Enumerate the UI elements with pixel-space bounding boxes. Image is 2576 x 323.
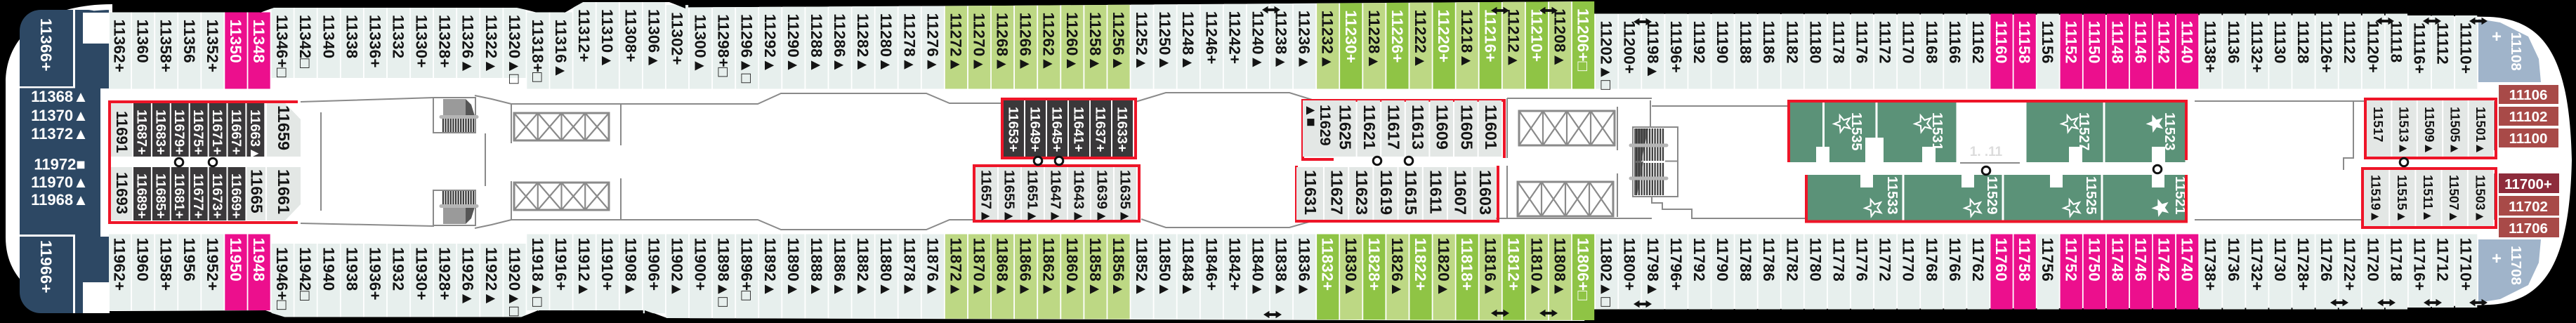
svg-text:11128: 11128: [2294, 21, 2312, 64]
svg-text:11700+: 11700+: [2504, 176, 2552, 192]
svg-text:11641+: 11641+: [1071, 107, 1086, 152]
svg-text:11866▲: 11866▲: [1017, 238, 1034, 298]
svg-text:11651▲: 11651▲: [1025, 170, 1041, 223]
svg-text:11138+: 11138+: [2202, 21, 2219, 73]
svg-text:11168: 11168: [1923, 21, 1940, 64]
svg-text:11948: 11948: [250, 238, 268, 282]
svg-text:11218▲: 11218▲: [1458, 9, 1476, 69]
svg-text:11830▲: 11830▲: [1342, 238, 1360, 298]
svg-text:11880▲: 11880▲: [877, 238, 895, 298]
svg-text:11368▲: 11368▲: [31, 88, 88, 105]
svg-text:11846+: 11846+: [1202, 238, 1220, 291]
svg-text:11531: 11531: [1929, 112, 1945, 151]
svg-text:11340: 11340: [320, 15, 337, 58]
svg-text:11503▲: 11503▲: [2473, 175, 2488, 223]
svg-text:11513▲: 11513▲: [2397, 107, 2412, 155]
svg-text:11716+: 11716+: [2411, 238, 2429, 291]
svg-text:11836▲: 11836▲: [1296, 238, 1313, 298]
svg-text:11206+□: 11206+□: [1575, 8, 1592, 72]
svg-text:11226+: 11226+: [1388, 10, 1406, 63]
svg-text:11228▲: 11228▲: [1365, 10, 1383, 70]
svg-text:11350: 11350: [227, 20, 244, 63]
svg-text:11182: 11182: [1783, 21, 1801, 64]
svg-text:11647▲: 11647▲: [1048, 170, 1064, 223]
svg-text:11720: 11720: [2364, 238, 2381, 282]
svg-text:11728+: 11728+: [2294, 238, 2312, 291]
svg-text:11511▲: 11511▲: [2421, 175, 2436, 223]
svg-text:11896+□: 11896+□: [738, 238, 756, 301]
svg-text:11832+: 11832+: [1319, 238, 1336, 291]
svg-text:11310▲: 11310▲: [598, 9, 616, 69]
svg-text:11828+: 11828+: [1365, 238, 1383, 291]
svg-text:11868▲: 11868▲: [994, 238, 1011, 298]
svg-text:11330+: 11330+: [413, 15, 431, 68]
svg-text:11906+: 11906+: [645, 238, 662, 291]
svg-text:11348: 11348: [250, 20, 268, 63]
svg-text:11308+: 11308+: [622, 9, 639, 62]
svg-text:11158: 11158: [2016, 21, 2033, 64]
svg-text:11722+: 11722+: [2341, 238, 2358, 291]
svg-text:11962+: 11962+: [111, 238, 129, 291]
svg-text:11850▲: 11850▲: [1156, 238, 1174, 298]
svg-text:11653+: 11653+: [1006, 107, 1021, 152]
svg-text:11286▲: 11286▲: [831, 13, 848, 73]
svg-text:11188: 11188: [1737, 21, 1754, 64]
svg-text:11960: 11960: [134, 238, 152, 282]
svg-text:11338: 11338: [343, 15, 360, 58]
svg-text:11760: 11760: [1992, 238, 2010, 282]
svg-text:11655▲: 11655▲: [1001, 170, 1018, 223]
svg-text:11519▲: 11519▲: [2369, 175, 2384, 223]
svg-text:11615: 11615: [1402, 170, 1420, 215]
svg-text:11970▲: 11970▲: [31, 173, 88, 191]
svg-text:11200+: 11200+: [1621, 21, 1638, 74]
svg-text:11150: 11150: [2085, 21, 2103, 64]
svg-text:11132+: 11132+: [2248, 21, 2266, 73]
svg-text:11238▲: 11238▲: [1273, 11, 1290, 70]
svg-text:11645+: 11645+: [1049, 107, 1065, 152]
svg-text:11710+: 11710+: [2457, 238, 2475, 291]
svg-text:11806+□: 11806+□: [1575, 238, 1592, 301]
svg-text:11318+□: 11318+□: [529, 20, 546, 83]
svg-text:11639▲: 11639▲: [1094, 170, 1110, 223]
svg-text:11212▲: 11212▲: [1504, 9, 1522, 69]
svg-text:11657▲: 11657▲: [978, 170, 994, 223]
svg-text:11860▲: 11860▲: [1063, 238, 1081, 298]
svg-text:11148: 11148: [2108, 21, 2126, 64]
svg-text:11342□: 11342□: [296, 15, 314, 68]
svg-text:11266▲: 11266▲: [1017, 13, 1034, 72]
svg-text:11912▲: 11912▲: [575, 238, 593, 298]
svg-text:11306▲: 11306▲: [645, 9, 662, 69]
svg-text:11772: 11772: [1877, 238, 1894, 282]
svg-text:11780: 11780: [1806, 238, 1824, 282]
svg-text:11908▲: 11908▲: [622, 238, 639, 298]
svg-text:11256▲: 11256▲: [1110, 12, 1127, 72]
svg-text:11685+: 11685+: [152, 173, 168, 219]
svg-text:11746: 11746: [2132, 238, 2150, 282]
svg-text:11196+: 11196+: [1667, 21, 1685, 73]
svg-text:11216+: 11216+: [1481, 9, 1499, 62]
svg-text:11856▲: 11856▲: [1110, 238, 1127, 298]
svg-text:11649+: 11649+: [1027, 107, 1043, 152]
svg-text:11358+: 11358+: [157, 20, 175, 73]
svg-text:11890▲: 11890▲: [784, 238, 802, 298]
svg-text:11718: 11718: [2387, 238, 2405, 282]
svg-text:11336+: 11336+: [366, 15, 383, 68]
svg-text:11328+: 11328+: [436, 15, 454, 68]
svg-text:11252▲: 11252▲: [1133, 12, 1150, 72]
svg-text:11750: 11750: [2085, 238, 2103, 282]
svg-text:11637+: 11637+: [1093, 107, 1108, 152]
svg-text:11812+: 11812+: [1504, 238, 1522, 291]
svg-text:11956: 11956: [180, 238, 198, 282]
svg-text:11326▲: 11326▲: [459, 15, 477, 74]
svg-text:11852▲: 11852▲: [1133, 238, 1150, 298]
svg-text:11186: 11186: [1760, 21, 1777, 64]
svg-text:11316▲: 11316▲: [552, 20, 570, 79]
svg-text:11356: 11356: [180, 20, 198, 63]
svg-text:11302+: 11302+: [669, 12, 686, 65]
svg-text:11920▲□: 11920▲□: [506, 247, 523, 317]
svg-text:11156: 11156: [2039, 21, 2056, 64]
svg-text:11663▲: 11663▲: [247, 110, 263, 160]
svg-text:11758: 11758: [2016, 238, 2033, 282]
svg-text:11529: 11529: [1984, 176, 1999, 215]
svg-text:11876▲: 11876▲: [924, 238, 941, 298]
svg-text:11667+: 11667+: [228, 110, 244, 155]
svg-text:11627: 11627: [1328, 170, 1346, 215]
svg-text:11936+: 11936+: [366, 247, 383, 301]
svg-text:11966+: 11966+: [37, 240, 55, 294]
svg-text:11788: 11788: [1737, 238, 1754, 282]
svg-text:11762: 11762: [1969, 238, 1987, 282]
svg-text:11748: 11748: [2108, 238, 2126, 282]
svg-text:11808▲: 11808▲: [1551, 238, 1569, 298]
svg-text:11691: 11691: [113, 111, 131, 153]
svg-text:11170: 11170: [1900, 21, 1917, 64]
svg-text:11886▲: 11886▲: [831, 238, 848, 298]
svg-text:11607: 11607: [1452, 170, 1470, 215]
svg-text:11619: 11619: [1377, 170, 1395, 215]
svg-text:11232▲: 11232▲: [1319, 11, 1336, 70]
svg-text:11922▲: 11922▲: [482, 247, 500, 307]
svg-text:11100: 11100: [2509, 131, 2548, 147]
svg-text:11258▲: 11258▲: [1086, 12, 1104, 72]
svg-text:11136: 11136: [2225, 21, 2242, 64]
svg-text:11800+: 11800+: [1621, 238, 1638, 291]
svg-text:11858▲: 11858▲: [1086, 238, 1104, 298]
svg-text:11742: 11742: [2155, 238, 2173, 282]
svg-text:11926▲: 11926▲: [459, 247, 477, 307]
svg-text:11220+: 11220+: [1435, 10, 1452, 63]
svg-text:11360: 11360: [134, 20, 152, 63]
svg-text:11523: 11523: [2162, 112, 2177, 151]
svg-text:11250▲: 11250▲: [1156, 11, 1174, 71]
svg-text:11708: 11708: [2508, 246, 2524, 285]
svg-text:11840▲: 11840▲: [1249, 238, 1267, 298]
svg-text:11178: 11178: [1830, 21, 1848, 64]
svg-text:11288▲: 11288▲: [808, 14, 825, 74]
svg-text:11370▲: 11370▲: [31, 107, 88, 124]
svg-text:11631: 11631: [1301, 170, 1320, 215]
svg-text:11940: 11940: [320, 247, 337, 291]
svg-text:11142: 11142: [2155, 21, 2173, 64]
svg-text:11916+: 11916+: [552, 238, 570, 291]
svg-text:11609: 11609: [1433, 105, 1452, 150]
svg-text:11172: 11172: [1877, 21, 1894, 64]
svg-text:11210+: 11210+: [1527, 9, 1545, 62]
svg-text:11816▲: 11816▲: [1481, 238, 1499, 298]
svg-text:▲■: ▲■: [1303, 103, 1319, 126]
svg-text:11613: 11613: [1409, 105, 1427, 150]
svg-text:11677+: 11677+: [190, 173, 206, 219]
svg-text:11802▲□: 11802▲□: [1598, 238, 1615, 308]
svg-text:11112: 11112: [2434, 22, 2452, 65]
svg-text:11362+: 11362+: [111, 20, 129, 73]
svg-text:11160: 11160: [1992, 21, 2010, 64]
svg-text:11108: 11108: [2508, 32, 2524, 71]
svg-text:11300▲: 11300▲: [692, 14, 709, 74]
svg-text:11122: 11122: [2341, 21, 2358, 64]
svg-text:11930+: 11930+: [413, 247, 431, 301]
svg-text:11292▲: 11292▲: [761, 14, 779, 74]
svg-text:11950: 11950: [227, 238, 244, 282]
svg-text:11818+: 11818+: [1458, 238, 1476, 291]
svg-text:11110+: 11110+: [2457, 22, 2475, 74]
svg-text:11621: 11621: [1360, 105, 1379, 150]
svg-text:11900+: 11900+: [692, 238, 709, 291]
svg-text:11673+: 11673+: [209, 173, 225, 219]
svg-text:11118: 11118: [2387, 21, 2405, 63]
svg-text:11507▲: 11507▲: [2447, 175, 2462, 223]
svg-text:11693: 11693: [113, 172, 131, 214]
svg-text:11679+: 11679+: [171, 110, 187, 155]
svg-text:11320▲□: 11320▲□: [506, 15, 523, 84]
svg-text:11810▲: 11810▲: [1527, 238, 1545, 298]
svg-text:11202▲□: 11202▲□: [1598, 21, 1615, 91]
svg-text:11820▲: 11820▲: [1435, 238, 1452, 298]
svg-text:+: +: [2492, 27, 2502, 46]
svg-text:11878▲: 11878▲: [900, 238, 918, 298]
svg-text:11892▲: 11892▲: [761, 238, 779, 298]
svg-text:11140: 11140: [2179, 21, 2196, 64]
svg-text:11366+: 11366+: [37, 18, 55, 72]
svg-text:11501▲: 11501▲: [2473, 107, 2488, 155]
svg-text:11296▲□: 11296▲□: [738, 14, 756, 84]
svg-text:11126+: 11126+: [2318, 21, 2335, 73]
svg-text:11623: 11623: [1353, 170, 1371, 215]
svg-text:11681+: 11681+: [171, 173, 187, 219]
svg-text:11870▲: 11870▲: [971, 238, 988, 298]
svg-text:11535: 11535: [1848, 112, 1864, 151]
svg-text:11162: 11162: [1969, 21, 1987, 64]
svg-text:11527: 11527: [2076, 112, 2091, 151]
svg-text:11838▲: 11838▲: [1273, 238, 1290, 298]
svg-text:11176: 11176: [1853, 21, 1871, 64]
svg-text:11683+: 11683+: [152, 110, 168, 155]
svg-text:11822+: 11822+: [1412, 238, 1429, 291]
svg-text:11280▲: 11280▲: [877, 13, 895, 73]
svg-text:11116+: 11116+: [2411, 22, 2429, 74]
svg-text:11918▲□: 11918▲□: [529, 238, 546, 308]
svg-text:11687+: 11687+: [133, 110, 149, 155]
svg-text:11372▲: 11372▲: [31, 125, 88, 143]
svg-text:11776: 11776: [1853, 238, 1871, 282]
svg-text:11958+: 11958+: [157, 238, 175, 291]
svg-text:11272▲: 11272▲: [947, 13, 964, 72]
svg-text:11312+: 11312+: [575, 9, 593, 62]
svg-text:11726: 11726: [2318, 238, 2335, 282]
svg-text:11146: 11146: [2132, 21, 2150, 64]
svg-text:11298+□: 11298+□: [715, 14, 732, 77]
svg-text:11276▲: 11276▲: [924, 13, 941, 73]
svg-text:11665: 11665: [248, 169, 266, 213]
svg-text:11882▲: 11882▲: [854, 238, 872, 298]
svg-text:11270▲: 11270▲: [971, 13, 988, 72]
svg-text:11702: 11702: [2509, 199, 2548, 215]
svg-text:11752: 11752: [2062, 238, 2079, 282]
svg-text:11782: 11782: [1783, 238, 1801, 282]
svg-text:11872▲: 11872▲: [947, 238, 964, 298]
svg-text:11629: 11629: [1317, 105, 1334, 146]
svg-text:11517: 11517: [2371, 107, 2386, 142]
svg-text:11675+: 11675+: [190, 110, 206, 155]
svg-text:11346+□: 11346+□: [273, 15, 291, 78]
svg-text:11190: 11190: [1714, 21, 1731, 64]
svg-text:11533: 11533: [1884, 176, 1900, 215]
svg-text:11928+: 11928+: [436, 247, 454, 301]
svg-text:11712: 11712: [2434, 238, 2452, 282]
svg-text:11603: 11603: [1476, 170, 1494, 215]
svg-text:11102: 11102: [2509, 109, 2548, 125]
svg-text:11942□: 11942□: [296, 247, 314, 301]
svg-text:11240▲: 11240▲: [1249, 11, 1267, 70]
svg-text:11192: 11192: [1690, 21, 1708, 64]
svg-text:11260▲: 11260▲: [1063, 12, 1081, 72]
svg-text:11222▲: 11222▲: [1412, 10, 1429, 70]
svg-text:11826▲: 11826▲: [1388, 238, 1406, 298]
svg-text:11659: 11659: [275, 105, 293, 150]
svg-text:11972■: 11972■: [34, 156, 85, 173]
svg-text:11736: 11736: [2225, 238, 2242, 282]
svg-text:11898▲□: 11898▲□: [715, 238, 732, 308]
svg-text:11910+: 11910+: [598, 238, 616, 291]
svg-text:11525: 11525: [2083, 176, 2098, 215]
svg-text:11282▲: 11282▲: [854, 13, 872, 73]
svg-text:11706: 11706: [2509, 220, 2548, 237]
svg-text:11643▲: 11643▲: [1071, 170, 1087, 223]
svg-text:11786: 11786: [1760, 238, 1777, 282]
svg-text:11262▲: 11262▲: [1040, 13, 1058, 72]
svg-text:11661: 11661: [275, 169, 293, 214]
svg-text:11732+: 11732+: [2248, 238, 2266, 291]
svg-text:11208▲: 11208▲: [1551, 8, 1569, 68]
svg-text:11633+: 11633+: [1115, 107, 1130, 152]
svg-text:11120+: 11120+: [2364, 21, 2381, 73]
svg-text:11946+□: 11946+□: [273, 247, 291, 310]
svg-text:11669+: 11669+: [228, 173, 244, 219]
svg-text:11778: 11778: [1830, 238, 1848, 282]
svg-text:11605: 11605: [1457, 105, 1476, 150]
svg-text:11515▲: 11515▲: [2395, 175, 2410, 223]
svg-text:11505▲: 11505▲: [2447, 107, 2462, 155]
svg-text:11968▲: 11968▲: [31, 191, 88, 209]
svg-text:11768: 11768: [1923, 238, 1940, 282]
svg-text:11611: 11611: [1426, 170, 1445, 214]
svg-text:11756: 11756: [2039, 238, 2056, 282]
svg-text:11902▲: 11902▲: [669, 238, 686, 298]
svg-text:11938: 11938: [343, 247, 360, 291]
svg-text:11130: 11130: [2271, 21, 2289, 64]
svg-text:11798▲: 11798▲: [1644, 238, 1662, 298]
svg-text:11689+: 11689+: [133, 173, 149, 219]
svg-text:11952+: 11952+: [204, 238, 221, 291]
svg-text:11730: 11730: [2271, 238, 2289, 282]
svg-text:11740: 11740: [2179, 238, 2196, 282]
svg-text:11248▲: 11248▲: [1179, 11, 1197, 71]
svg-text:11635▲: 11635▲: [1117, 170, 1133, 223]
svg-text:11242+: 11242+: [1225, 11, 1243, 65]
svg-text:11796+: 11796+: [1667, 238, 1685, 291]
svg-text:11268▲: 11268▲: [994, 13, 1011, 72]
svg-text:11888▲: 11888▲: [808, 238, 825, 298]
svg-text:11246+: 11246+: [1202, 11, 1220, 65]
svg-text:11106: 11106: [2509, 87, 2548, 103]
svg-text:11152: 11152: [2062, 21, 2079, 64]
svg-text:11848▲: 11848▲: [1179, 238, 1197, 298]
svg-text:11166: 11166: [1946, 21, 1964, 64]
svg-text:11332: 11332: [390, 15, 407, 58]
svg-text:11290▲: 11290▲: [784, 14, 802, 74]
svg-text:11738+: 11738+: [2202, 238, 2219, 291]
svg-text:11770: 11770: [1900, 238, 1917, 282]
svg-text:11862▲: 11862▲: [1040, 238, 1058, 298]
svg-text:11322▲: 11322▲: [482, 15, 500, 74]
svg-text:11625: 11625: [1336, 105, 1354, 150]
svg-text:11766: 11766: [1946, 238, 1964, 282]
svg-text:11509▲: 11509▲: [2422, 107, 2437, 155]
svg-text:11842+: 11842+: [1225, 238, 1243, 291]
svg-text:11790: 11790: [1714, 238, 1731, 282]
svg-text:11180: 11180: [1806, 21, 1824, 64]
svg-text:11230+: 11230+: [1342, 10, 1360, 63]
svg-text:11198▲: 11198▲: [1644, 21, 1662, 80]
svg-text:11352+: 11352+: [204, 20, 221, 73]
svg-text:11617: 11617: [1385, 105, 1403, 150]
svg-text:11278▲: 11278▲: [900, 13, 918, 73]
svg-text:11792: 11792: [1690, 238, 1708, 282]
svg-text:11236▲: 11236▲: [1296, 11, 1313, 70]
svg-text:11671+: 11671+: [209, 110, 225, 155]
svg-text:1. .11: 1. .11: [1970, 145, 2003, 159]
svg-text:11601: 11601: [1482, 105, 1500, 150]
svg-text:+: +: [2492, 249, 2502, 268]
svg-text:11932: 11932: [390, 247, 407, 291]
